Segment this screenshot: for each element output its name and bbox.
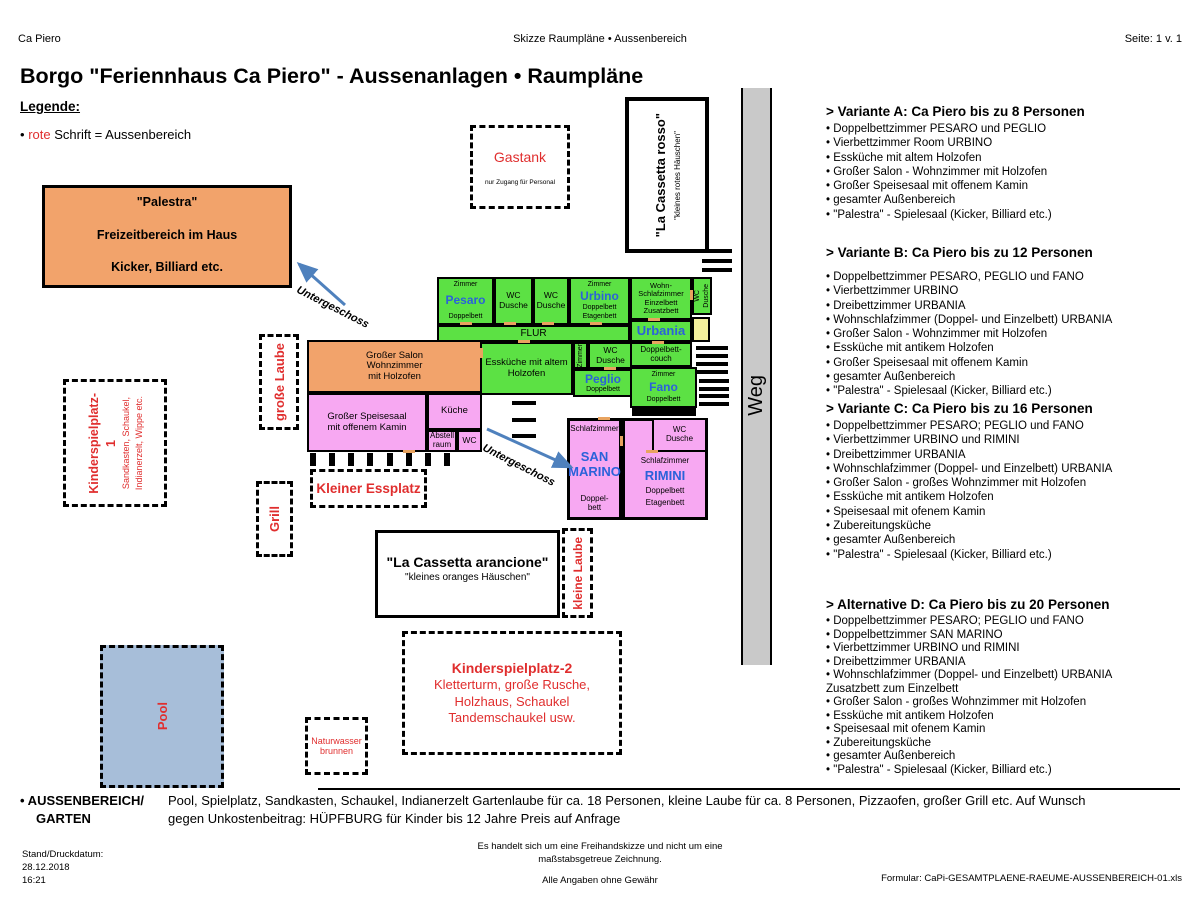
stair-step [702, 268, 732, 272]
door-marker [598, 417, 610, 420]
kinderspielplatz1-box: Kinderspielplatz- 1 Sandkasten, Schaukel… [63, 379, 167, 507]
variant-bullet: Vierbettzimmer URBINO und RIMINI [826, 642, 1188, 656]
kleiner-essplatz-label: Kleiner Essplatz [316, 481, 420, 496]
variant-a-heading: > Variante A: Ca Piero bis zu 8 Personen [826, 104, 1188, 119]
legend-red-word: rote [28, 127, 50, 142]
variant-bullet: Vierbettzimmer Room URBINO [826, 136, 1188, 150]
stair-step [696, 354, 728, 358]
variant-bullet: Wohnschlafzimmer (Doppel- und Einzelbett… [826, 462, 1188, 476]
peglio-bed: Doppelbett [586, 386, 620, 394]
cassetta-rosso-box: "La Cassetta rosso" "kleines rotes Häusc… [625, 97, 709, 253]
esskueche-l1: Essküche mit altem [485, 358, 567, 369]
gastank-box: Gastank nur Zugang für Personal [470, 125, 570, 209]
variant-bullet: "Palestra" - Spielesaal (Kicker, Billiar… [826, 764, 1188, 778]
variant-bullet: Vierbettzimmer URBINO und RIMINI [826, 433, 1188, 447]
untergeschoss-label-2: Untergeschoss [481, 442, 557, 489]
variant-c-heading: > Variante C: Ca Piero bis zu 16 Persone… [826, 401, 1188, 416]
gastank-note: nur Zugang für Personal [485, 179, 555, 186]
room-wc-vert: WC Dusche [692, 277, 712, 315]
disclaimer-1: Es handelt sich um eine Freihandskizze u… [0, 840, 1200, 853]
wall-bar [632, 406, 696, 416]
stair-step [702, 249, 732, 253]
door-marker [690, 290, 693, 300]
variant-bullet: Zubereitungsküche [826, 519, 1188, 533]
room-wc-b: WC Dusche [533, 277, 569, 325]
wc-a-l2: Dusche [499, 301, 528, 311]
post [367, 453, 373, 466]
post [425, 453, 431, 466]
variant-a-block: > Variante A: Ca Piero bis zu 8 Personen… [826, 104, 1188, 222]
brunnen-box: Naturwasser brunnen [305, 717, 368, 775]
urbino-name: Urbino [580, 290, 619, 303]
grill-label: Grill [267, 506, 282, 532]
post [310, 453, 316, 466]
disclaimer-2: maßstabsgetreue Zeichnung. [0, 853, 1200, 866]
variant-bullet: Speisesaal mit ofenem Kamin [826, 505, 1188, 519]
palestra-line2: Freizeitbereich im Haus [97, 228, 237, 242]
room-doppelbett-couch: Doppelbett-couch [630, 342, 692, 367]
variant-a-list: Doppelbettzimmer PESARO und PEGLIOVierbe… [826, 122, 1188, 222]
speisesaal-l2: mit offenem Kamin [327, 423, 406, 434]
variant-d-block: > Alternative D: Ca Piero bis zu 20 Pers… [826, 597, 1188, 777]
rimini-b2: Etagenbett [646, 499, 685, 508]
grosse-laube-box: große Laube [259, 334, 299, 430]
stairs-middle [512, 401, 536, 438]
variant-bullet: gesamter Außenbereich [826, 193, 1188, 207]
room-urbania: Urbania [630, 320, 692, 342]
variant-bullet: "Palestra" - Spielesaal (Kicker, Billiar… [826, 208, 1188, 222]
aussenbereich-text-2: gegen Unkostenbeitrag: HÜPFBURG für Kind… [168, 811, 1178, 826]
variant-bullet: Doppelbettzimmer PESARO; PEGLIO und FANO [826, 419, 1188, 433]
fano-name: Fano [649, 381, 678, 394]
brunnen-l1: Naturwasser [311, 736, 362, 746]
cassetta-rosso-name: "La Cassetta rosso" [653, 113, 668, 237]
variant-bullet: Speisesaal mit ofenem Kamin [826, 723, 1188, 737]
kinderspielplatz2-box: Kinderspielplatz-2 Kletterturm, große Ru… [402, 631, 622, 755]
palestra-box: "Palestra" Freizeitbereich im Haus Kicke… [42, 185, 292, 288]
untergeschoss-label-1: Untergeschoss [295, 284, 371, 331]
room-salon: Großer Salon Wohnzimmer mit Holzofen [307, 340, 482, 393]
legend-heading: Legende: [20, 99, 80, 114]
palestra-name: "Palestra" [137, 195, 198, 209]
salon-l3: mit Holzofen [368, 372, 421, 383]
variant-bullet: "Palestra" - Spielesaal (Kicker, Billiar… [826, 548, 1188, 562]
sanmarino-b2: bett [580, 504, 608, 513]
wc-b-l2: Dusche [537, 301, 566, 311]
kleine-laube-label: kleine Laube [571, 537, 585, 610]
sanmarino-n1: SAN [568, 450, 621, 465]
variant-b-list: Doppelbettzimmer PESARO, PEGLIO und FANO… [826, 270, 1188, 399]
stairs-east-lower [699, 379, 729, 406]
variant-d-heading: > Alternative D: Ca Piero bis zu 20 Pers… [826, 597, 1188, 612]
post [406, 453, 412, 466]
wc-vert-l1: WC [694, 290, 702, 302]
gastank-label: Gastank [494, 149, 546, 165]
door-marker [604, 367, 616, 370]
variant-c-block: > Variante C: Ca Piero bis zu 16 Persone… [826, 401, 1188, 562]
abstell-l2: raum [433, 441, 451, 450]
urbino-top: Zimmer [588, 281, 612, 289]
grill-box: Grill [256, 481, 293, 557]
door-marker [518, 340, 530, 343]
veranda-posts [310, 453, 450, 466]
kueche-label: Küche [441, 406, 468, 417]
wohnschlaf-l4: Zusatzbett [643, 307, 678, 315]
wc-d-label: WC [462, 436, 476, 446]
stair-step [699, 402, 729, 406]
kinderspielplatz2-l3: Tandemschaukel usw. [448, 710, 575, 726]
legend-rest: Schrift = Aussenbereich [54, 127, 191, 142]
divider-line [318, 788, 1180, 790]
legend-line: • rote Schrift = Aussenbereich [20, 127, 191, 142]
stair-step [696, 346, 728, 350]
wc-c-l2: Dusche [596, 356, 625, 366]
kinderspielplatz1-desc2: Indianerzelt, Wippe etc. [134, 396, 144, 490]
door-marker [460, 322, 472, 325]
fano-bed: Doppelbett [647, 396, 681, 404]
variant-bullet: Großer Salon - Wohnzimmer mit Holzofen [826, 327, 1188, 341]
variant-bullet: Dreibettzimmer URBANIA [826, 448, 1188, 462]
variant-b-block: > Variante B: Ca Piero bis zu 12 Persone… [826, 245, 1188, 399]
variant-bullet: Großer Speisesaal mit offenem Kamin [826, 179, 1188, 193]
grosse-laube-label: große Laube [272, 343, 287, 421]
entry-mat [692, 317, 710, 342]
stair-step [699, 379, 729, 383]
post [387, 453, 393, 466]
room-san-marino: Schlafzimmer SAN MARINO Doppel- bett [567, 418, 622, 520]
room-wc-a: WC Dusche [494, 277, 533, 325]
aussenbereich-label-2: GARTEN [36, 811, 91, 826]
fano-top: Zimmer [652, 371, 676, 379]
stair-step [696, 362, 728, 366]
kinderspielplatz1-number: 1 [104, 440, 118, 447]
variant-c-list: Doppelbettzimmer PESARO; PEGLIO und FANO… [826, 419, 1188, 562]
stair-step [512, 434, 536, 438]
pool-box: Pool [100, 645, 224, 788]
stair-step [512, 401, 536, 405]
post [348, 453, 354, 466]
door-marker [504, 322, 516, 325]
room-wc-d: WC [457, 430, 482, 452]
rimini-top: Schlafzimmer [641, 457, 689, 466]
wc-e-l2: Dusche [666, 435, 693, 444]
urbania-name: Urbania [637, 324, 685, 339]
room-peglio: Peglio Doppelbett [573, 369, 633, 397]
stair-step [699, 387, 729, 391]
wc-vert-l2: Dusche [703, 284, 711, 308]
door-marker [652, 341, 664, 344]
header-center: Skizze Raumpläne • Aussenbereich [0, 33, 1200, 45]
door-marker [620, 436, 623, 446]
variant-bullet: Wohnschlafzimmer (Doppel- und Einzelbett… [826, 313, 1188, 327]
formular-reference: Formular: CaPi-GESAMTPLAENE-RAEUME-AUSSE… [881, 872, 1182, 885]
kinderspielplatz2-title: Kinderspielplatz-2 [452, 660, 573, 678]
stair-step [512, 418, 536, 422]
room-pesaro-top: Zimmer [454, 281, 478, 289]
floorplan-sketch-page: Ca Piero Skizze Raumpläne • Aussenbereic… [0, 0, 1200, 900]
door-marker [646, 450, 658, 453]
door-marker [590, 322, 602, 325]
variant-d-list: Doppelbettzimmer PESARO; PEGLIO und FANO… [826, 615, 1188, 777]
rimini-name: RIMINI [645, 469, 685, 484]
variant-bullet: Essküche mit antikem Holzofen [826, 710, 1188, 724]
dbcouch-label: Doppelbett-couch [632, 346, 690, 364]
rimini-b1: Doppelbett [646, 487, 685, 496]
room-fano: Zimmer Fano Doppelbett [630, 367, 697, 408]
room-zimmer-strip: Zimmer [573, 342, 588, 369]
esskueche-l2: Holzofen [508, 369, 546, 380]
variant-bullet: Essküche mit antikem Holzofen [826, 341, 1188, 355]
urbino-b2: Etagenbett [583, 313, 617, 321]
peglio-name: Peglio [585, 373, 621, 386]
post [329, 453, 335, 466]
variant-bullet: Doppelbettzimmer PESARO, PEGLIO und FANO [826, 270, 1188, 284]
door-marker [403, 450, 415, 453]
kinderspielplatz2-l1: Kletterturm, große Rusche, [434, 677, 590, 693]
variant-bullet: Essküche mit antikem Holzofen [826, 490, 1188, 504]
variant-bullet: Doppelbettzimmer PESARO und PEGLIO [826, 122, 1188, 136]
kinderspielplatz1-title: Kinderspielplatz- [87, 393, 101, 494]
variant-bullet: Großer Salon - großes Wohnzimmer mit Hol… [826, 476, 1188, 490]
variant-bullet: Essküche mit altem Holzofen [826, 151, 1188, 165]
page-title: Borgo "Feriennhaus Ca Piero" - Aussenanl… [20, 64, 643, 89]
variant-bullet: Zubereitungsküche [826, 737, 1188, 751]
kinderspielplatz2-l2: Holzhaus, Schaukel [455, 694, 570, 710]
variant-bullet: Großer Salon - großes Wohnzimmer mit Hol… [826, 696, 1188, 710]
room-pesaro-name: Pesaro [445, 294, 485, 307]
room-abstellraum: Abstell raum [427, 430, 457, 452]
stair-step [702, 259, 732, 263]
room-pesaro-bed: Doppelbett [449, 313, 483, 321]
cassetta-arancione-sub: "kleines oranges Häuschen" [405, 572, 530, 583]
stair-step [696, 370, 728, 374]
variant-bullet: gesamter Außenbereich [826, 370, 1188, 384]
door-marker [480, 348, 483, 358]
variant-bullet: gesamter Außenbereich [826, 533, 1188, 547]
room-kueche: Küche [427, 393, 482, 430]
palestra-line3: Kicker, Billiard etc. [111, 260, 223, 274]
variant-bullet: gesamter Außenbereich [826, 750, 1188, 764]
stair-step [699, 394, 729, 398]
post [444, 453, 450, 466]
variant-bullet: Vierbettzimmer URBINO [826, 284, 1188, 298]
sanmarino-top: Schlafzimmer [570, 425, 618, 434]
room-esskueche: Essküche mit altem Holzofen [480, 342, 573, 395]
room-wc-c: WC Dusche [588, 342, 633, 369]
urbino-b1: Doppelbett [583, 304, 617, 312]
weg-label: Weg [745, 375, 768, 416]
door-marker [542, 322, 554, 325]
door-marker [648, 318, 660, 321]
zimmer-strip-label: Zimmer [577, 344, 585, 368]
flur-label: FLUR [520, 328, 546, 339]
kleine-laube-box: kleine Laube [562, 528, 593, 618]
speisesaal-l1: Großer Speisesaal [327, 412, 406, 423]
sanmarino-n2: MARINO [568, 465, 621, 480]
legend-bullet: • [20, 127, 25, 142]
brunnen-l2: brunnen [320, 746, 353, 756]
variant-bullet: Großer Salon - Wohnzimmer mit Holzofen [826, 165, 1188, 179]
cassetta-rosso-sub: "kleines rotes Häuschen" [673, 131, 682, 220]
room-speisesaal: Großer Speisesaal mit offenem Kamin [307, 393, 427, 452]
variant-bullet: Doppelbettzimmer PESARO; PEGLIO und FANO [826, 615, 1188, 629]
cassetta-arancione-name: "La Cassetta arancione" [387, 554, 549, 570]
variant-bullet: Dreibettzimmer URBANIA [826, 656, 1188, 670]
variant-bullet: Wohnschlafzimmer (Doppel- und Einzelbett… [826, 669, 1188, 696]
stairs-north [702, 249, 732, 272]
room-urbino: Zimmer Urbino Doppelbett Etagenbett [569, 277, 630, 325]
variant-bullet: Dreibettzimmer URBANIA [826, 299, 1188, 313]
kinderspielplatz1-desc1: Sandkasten, Schaukel, [121, 397, 131, 489]
header-right: Seite: 1 v. 1 [1125, 33, 1182, 45]
cassetta-arancione-box: "La Cassetta arancione" "kleines oranges… [375, 530, 560, 618]
stairs-east-upper [696, 346, 728, 374]
aussenbereich-label-1: • AUSSENBEREICH/ [20, 793, 144, 808]
variant-bullet: Doppelbettzimmer SAN MARINO [826, 629, 1188, 643]
weg-path: Weg [741, 88, 772, 665]
variant-bullet: "Palestra" - Spielesaal (Kicker, Billiar… [826, 384, 1188, 398]
variant-bullet: Großer Speisesaal mit offenem Kamin [826, 356, 1188, 370]
room-wohnschlafzimmer: Wohn- Schlafzimmer Einzelbett Zusatzbett [630, 277, 692, 320]
room-pesaro: Zimmer Pesaro Doppelbett [437, 277, 494, 325]
pool-label: Pool [155, 702, 170, 730]
aussenbereich-text-1: Pool, Spielplatz, Sandkasten, Schaukel, … [168, 793, 1178, 808]
variant-b-heading: > Variante B: Ca Piero bis zu 12 Persone… [826, 245, 1188, 260]
kleiner-essplatz-box: Kleiner Essplatz [310, 469, 427, 508]
room-wc-e: WC Dusche [652, 418, 707, 452]
